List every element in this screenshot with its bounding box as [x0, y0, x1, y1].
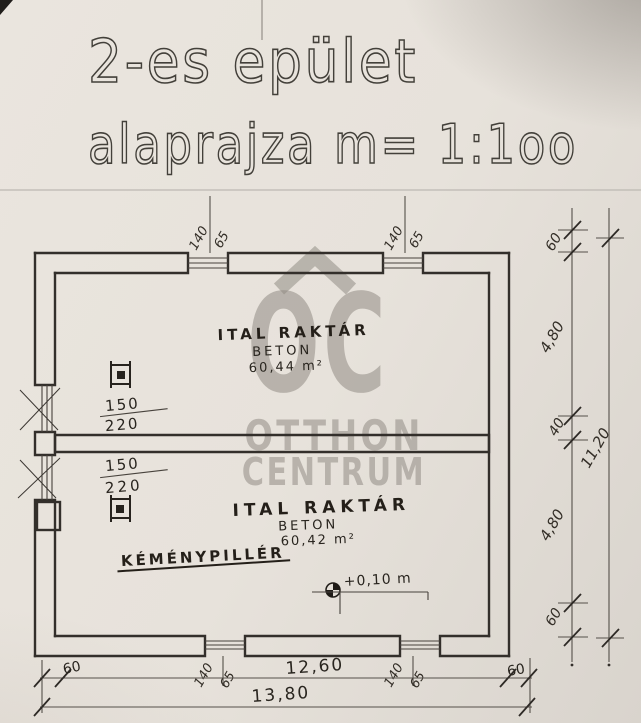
- dim-bottom-win1-width: 140: [191, 661, 216, 690]
- dim-bottom-left-wall: 60: [62, 659, 83, 678]
- dim-top-win1-sill: 65: [211, 229, 232, 251]
- dim-bottom-total: 13,80: [251, 683, 311, 707]
- dim-bottom-right-wall: 60: [506, 661, 526, 680]
- dim-left-open2-sill: 220: [104, 476, 143, 497]
- floorplan-canvas: OC OTTHON CENTRUM 2-es epület alaprajza …: [0, 0, 641, 723]
- dim-top-win2-width: 140: [381, 224, 406, 253]
- dim-right-mid-wall: 40: [546, 415, 569, 439]
- pillar-room1: [111, 361, 130, 388]
- dim-bottom-win2-width: 140: [381, 661, 406, 690]
- dim-right-bottom-wall: 60: [543, 605, 566, 629]
- right-dimension-chain: 60 4,80 40 11,20 4,80 60: [536, 208, 624, 666]
- right-wall: [489, 253, 509, 656]
- pillars: [111, 361, 130, 522]
- dim-bottom-win2-sill: 65: [407, 669, 428, 691]
- level-value: +0,10 m: [343, 570, 412, 590]
- bottom-dimension-chain: 60 12,60 60 13,80: [34, 655, 537, 716]
- chimney-label: KÉMÉNYPILLÉR: [116, 542, 290, 571]
- bottom-wall: [35, 636, 509, 656]
- scanned-floorplan-page: OC OTTHON CENTRUM 2-es epület alaprajza …: [0, 0, 641, 723]
- level-marker: +0,10 m: [312, 570, 428, 614]
- dim-top-win2-sill: 65: [406, 229, 427, 251]
- dim-left-open2-width: 150: [104, 454, 140, 475]
- dim-left-open1-width: 150: [104, 394, 140, 415]
- dim-right-total: 11,20: [577, 425, 614, 471]
- title-line1: 2-es epület: [88, 27, 418, 97]
- dim-right-top-wall: 60: [543, 230, 566, 254]
- room2-area: 60,42 m²: [280, 532, 356, 550]
- dim-left-open1-sill: 220: [104, 414, 140, 435]
- room2-name: ITAL RAKTÁR: [232, 493, 410, 521]
- watermark-name-line2: CENTRUM: [242, 451, 426, 495]
- room2-label: ITAL RAKTÁR BETON 60,42 m²: [232, 493, 411, 551]
- dim-bottom-inner-width: 12,60: [285, 655, 345, 679]
- dim-right-room1-depth: 4,80: [536, 318, 568, 356]
- left-wall-pier: [37, 502, 60, 530]
- pillar-room2: [111, 495, 130, 522]
- room1-floor: BETON: [252, 343, 313, 360]
- bottom-window-sills: [205, 641, 440, 649]
- watermark: OC OTTHON CENTRUM: [242, 256, 426, 495]
- title-line2: alaprajza m= 1:1oo: [88, 113, 578, 176]
- dim-right-room2-depth: 4,80: [536, 506, 568, 544]
- left-wall: [35, 253, 55, 656]
- drawing-title: 2-es epület alaprajza m= 1:1oo: [88, 27, 578, 176]
- dim-bottom-win1-sill: 65: [217, 669, 238, 691]
- left-opening-hatch: [18, 388, 60, 498]
- left-opening-dimensions: 150 220 150 220: [98, 392, 169, 498]
- dim-top-win1-width: 140: [186, 224, 211, 253]
- photo-corner-mark: [0, 0, 13, 15]
- top-window-dimensions: 140 65 140 65: [186, 196, 427, 253]
- room1-area: 60,44 m²: [249, 358, 325, 376]
